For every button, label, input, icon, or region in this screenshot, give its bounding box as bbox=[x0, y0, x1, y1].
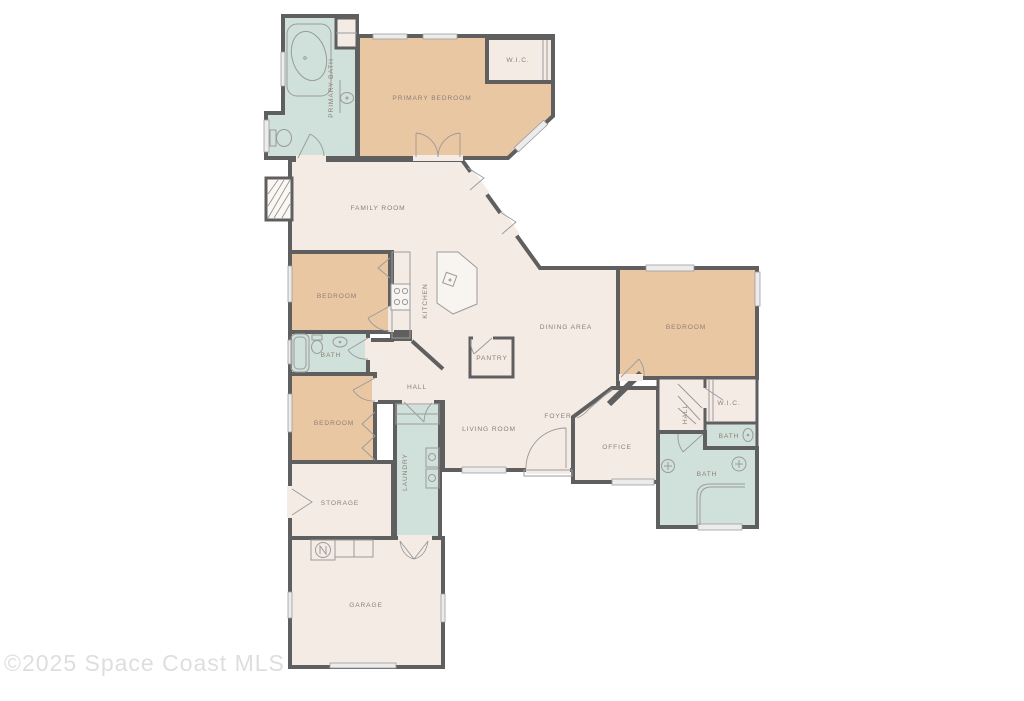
room-bedroom-right bbox=[618, 268, 757, 378]
door-gap-bath-left bbox=[365, 338, 371, 360]
window-toilet-room bbox=[264, 120, 269, 152]
window-bedroom-right-top bbox=[646, 265, 694, 271]
window-bath-right-lower bbox=[698, 524, 742, 530]
window-office bbox=[612, 479, 654, 485]
door-gap-primary-bath-hall bbox=[296, 155, 326, 162]
label-dining-area: DINING AREA bbox=[540, 324, 592, 331]
label-bedroom-left-lower: BEDROOM bbox=[314, 420, 354, 427]
label-family-room: FAMILY ROOM bbox=[350, 205, 405, 212]
window-living-room bbox=[462, 467, 506, 473]
label-bedroom-left-upper: BEDROOM bbox=[317, 293, 357, 300]
kitchen-stove bbox=[391, 284, 410, 310]
door-gap-storage bbox=[287, 486, 293, 518]
label-hall-center: HALL bbox=[407, 384, 427, 391]
label-garage: GARAGE bbox=[349, 602, 383, 609]
label-wic-primary: W.I.C. bbox=[506, 57, 529, 64]
room-bath-right-lower bbox=[658, 432, 757, 527]
mls-watermark: ©2025 Space Coast MLS bbox=[4, 650, 285, 677]
window-garage-front bbox=[330, 663, 396, 668]
window-primary-bath bbox=[281, 52, 285, 86]
window-garage-right bbox=[441, 594, 445, 622]
label-hall-right: HALL bbox=[682, 404, 689, 424]
label-wic-right: W.I.C. bbox=[717, 400, 740, 407]
floor-plan-canvas: PRIMARY BATH W.I.C. PRIMARY BEDROOM FAMI… bbox=[0, 0, 1024, 701]
door-gap-garage-laundry bbox=[398, 535, 432, 542]
fireplace bbox=[266, 178, 292, 220]
room-bedroom-left-upper bbox=[290, 252, 390, 332]
window-bedroom-left-upper bbox=[288, 266, 292, 302]
label-bath-right-upper: BATH bbox=[719, 433, 740, 440]
label-laundry: LAUNDRY bbox=[402, 453, 409, 491]
label-foyer: FOYER bbox=[544, 413, 571, 420]
door-gap-wic-right bbox=[702, 388, 708, 408]
label-primary-bedroom: PRIMARY BEDROOM bbox=[392, 95, 471, 102]
door-gap-bedroom-left-lower bbox=[372, 378, 378, 402]
window-primary-bedroom-2 bbox=[423, 34, 457, 39]
label-bath-right-lower: BATH bbox=[697, 471, 718, 478]
window-bedroom-right-side bbox=[755, 272, 760, 306]
label-office: OFFICE bbox=[602, 444, 632, 451]
label-bedroom-right: BEDROOM bbox=[666, 324, 706, 331]
label-pantry: PANTRY bbox=[476, 355, 508, 362]
label-kitchen: KITCHEN bbox=[422, 283, 429, 318]
window-primary-bedroom-1 bbox=[373, 34, 407, 39]
label-living-room: LIVING ROOM bbox=[462, 426, 516, 433]
window-garage-left bbox=[288, 592, 292, 618]
label-bath-left: BATH bbox=[321, 352, 342, 359]
label-primary-bath: PRIMARY BATH bbox=[328, 58, 335, 118]
floor-plan-svg: PRIMARY BATH W.I.C. PRIMARY BEDROOM FAMI… bbox=[0, 0, 1024, 701]
window-bedroom-left-lower bbox=[288, 394, 292, 432]
label-storage: STORAGE bbox=[321, 500, 359, 507]
